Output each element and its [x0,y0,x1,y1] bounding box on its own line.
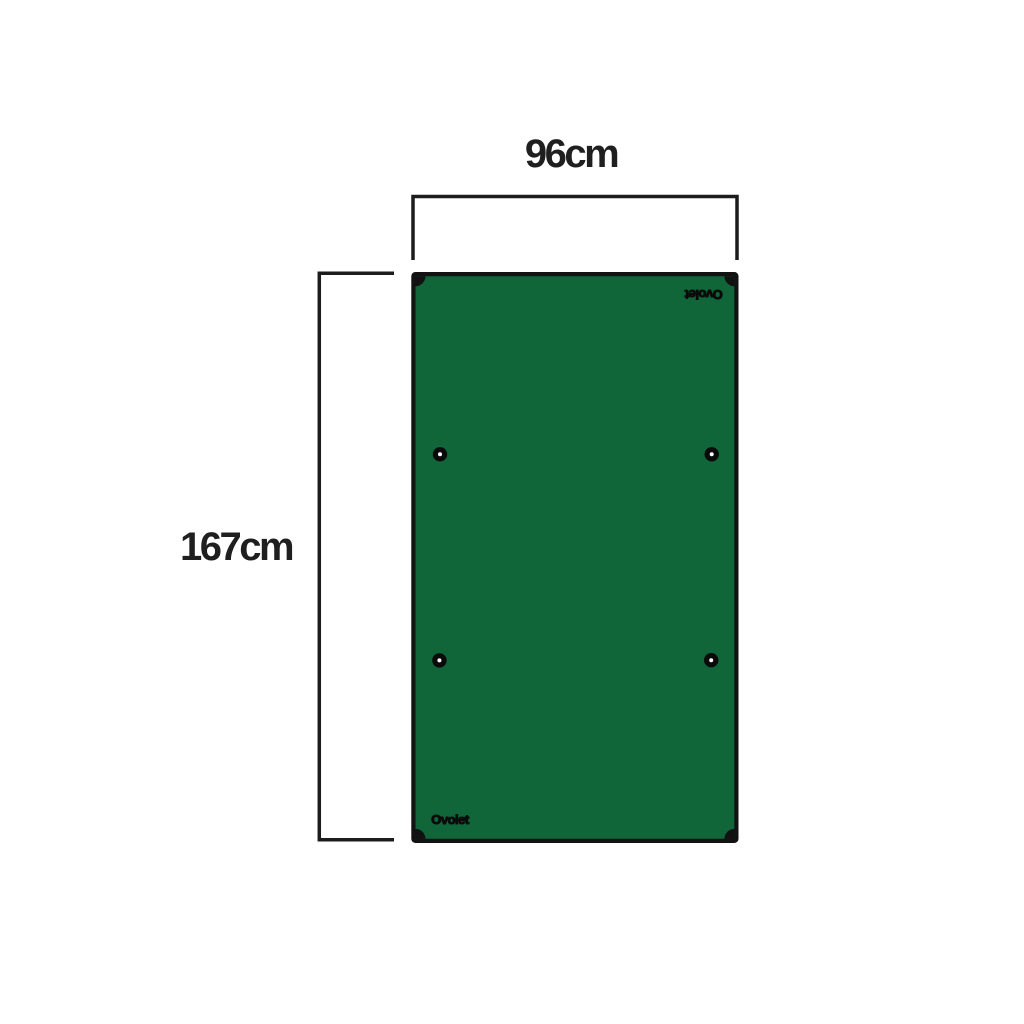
svg-text:96cm: 96cm [525,132,618,176]
svg-text:Ovolet: Ovolet [684,287,723,302]
svg-text:Ovolet: Ovolet [431,812,470,827]
svg-text:167cm: 167cm [180,525,293,569]
